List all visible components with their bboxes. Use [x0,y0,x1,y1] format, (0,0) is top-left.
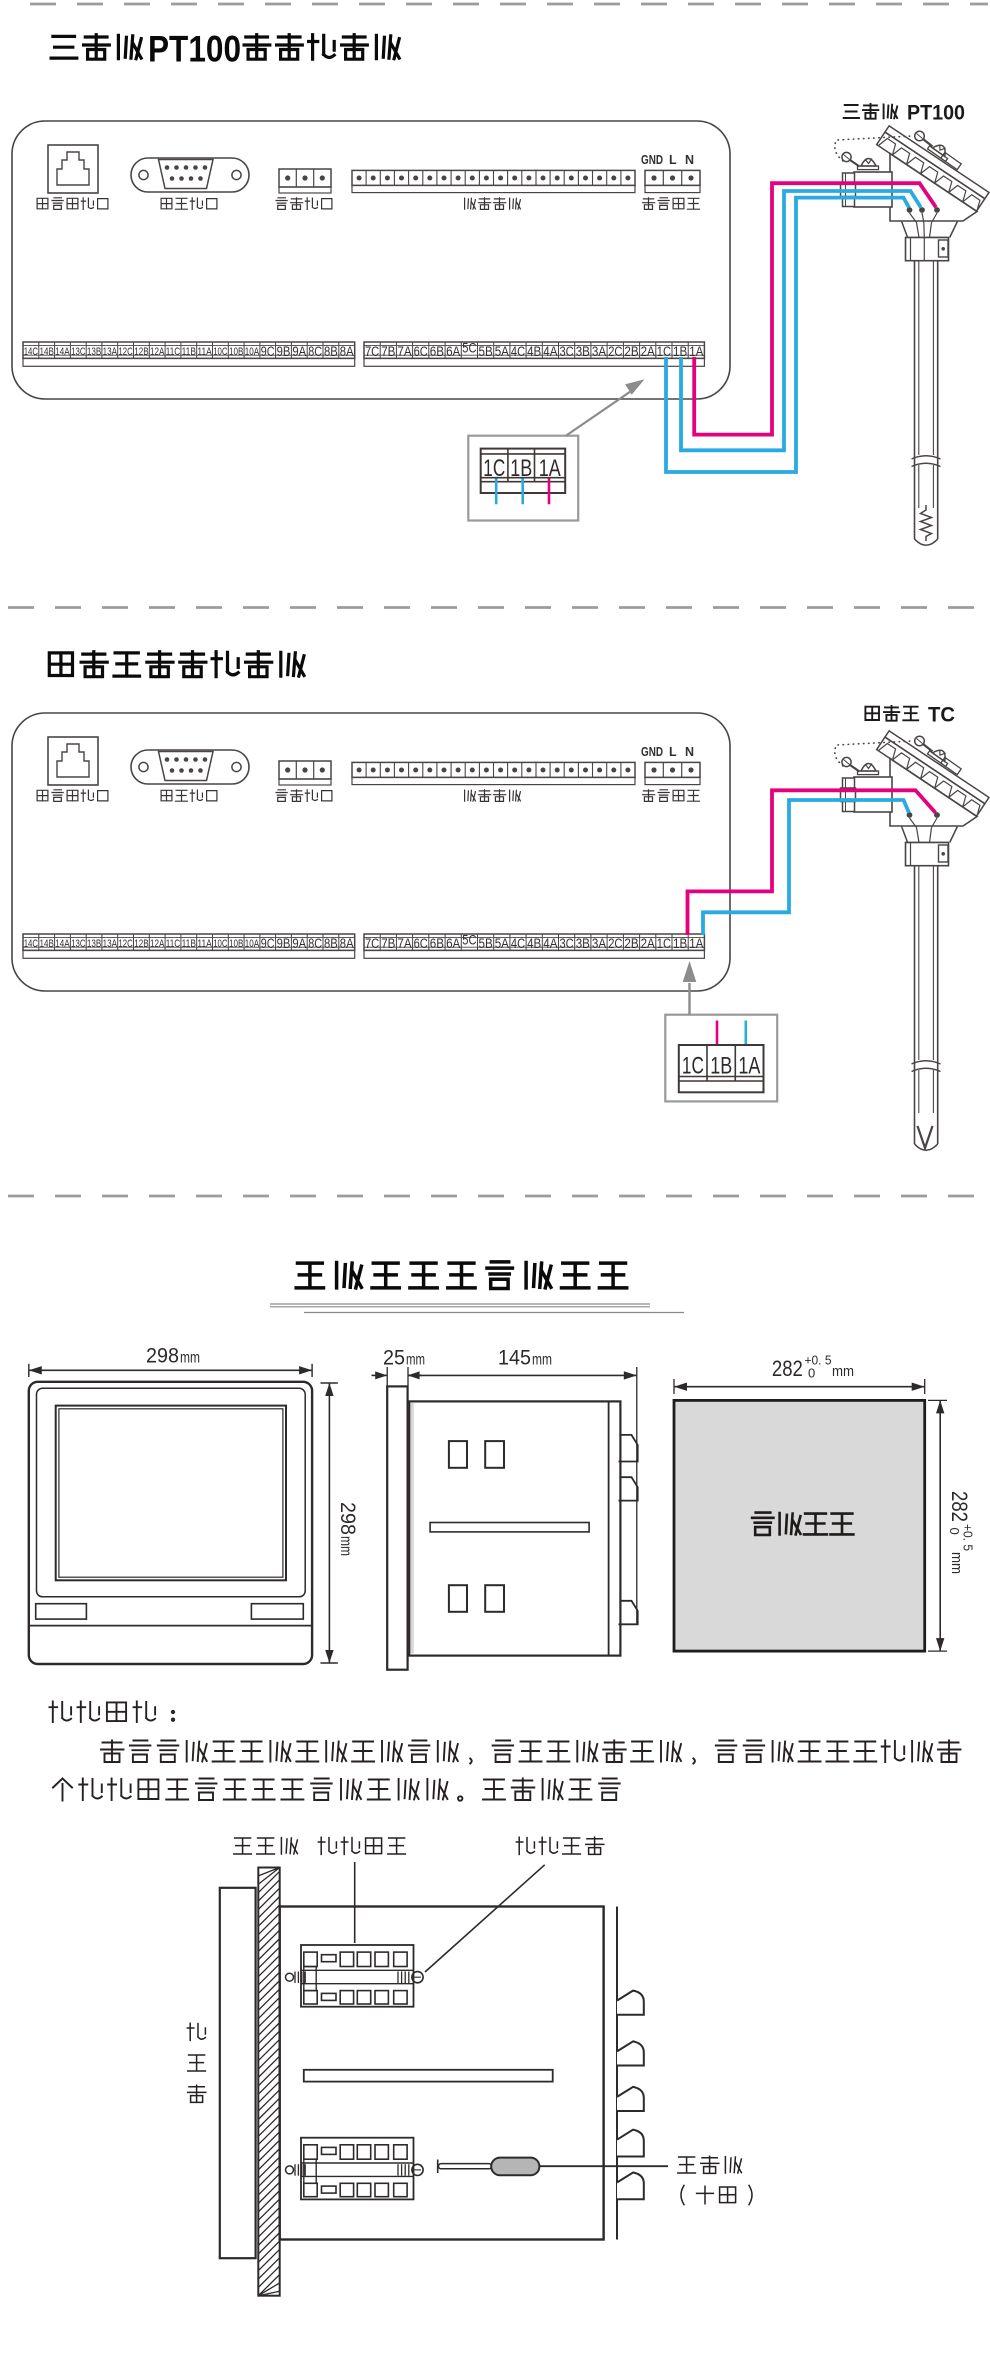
svg-text:25: 25 [383,1347,405,1370]
svg-text:PT100: PT100 [148,29,241,70]
svg-text:145: 145 [498,1347,531,1370]
svg-text:1A: 1A [539,455,561,482]
svg-text:298: 298 [146,1345,179,1368]
svg-text:282: 282 [947,1491,972,1522]
svg-text:1C: 1C [682,1053,704,1080]
svg-text:282: 282 [772,1356,803,1381]
svg-text:1B: 1B [510,455,532,482]
svg-text:mm: mm [948,1552,965,1574]
svg-text:1B: 1B [710,1053,732,1080]
svg-text:PT100: PT100 [907,101,965,125]
svg-text:1A: 1A [738,1053,760,1080]
svg-text:mm: mm [832,1363,854,1380]
svg-text:mm: mm [180,1350,200,1367]
svg-text:TC: TC [928,703,955,727]
svg-text:298: 298 [336,1502,359,1535]
svg-text:0: 0 [808,1366,815,1381]
svg-text:1C: 1C [483,455,505,482]
svg-text:mm: mm [337,1536,354,1556]
svg-text:mm: mm [406,1352,425,1369]
svg-text:mm: mm [532,1352,552,1369]
svg-text:0: 0 [947,1528,962,1535]
